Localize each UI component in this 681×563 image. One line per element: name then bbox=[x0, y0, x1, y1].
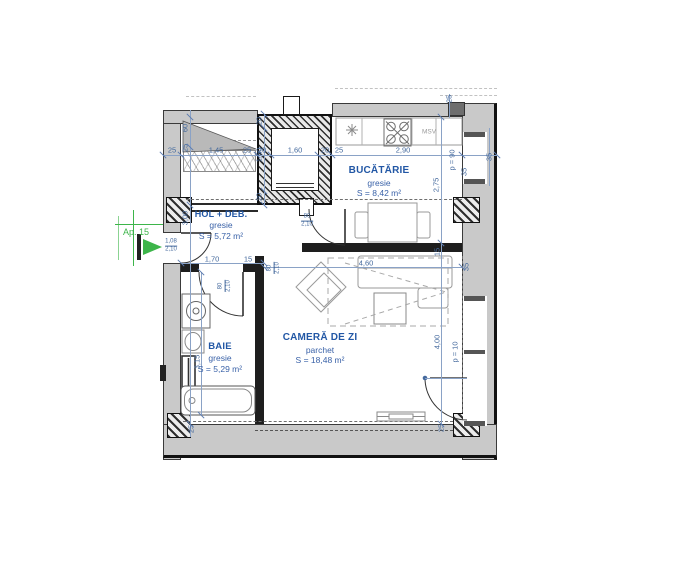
dimension-label: 20 bbox=[255, 117, 263, 125]
dimension-label: 1,45 bbox=[209, 146, 224, 154]
dimension-label: 25 bbox=[243, 146, 251, 154]
stove-icon bbox=[384, 119, 411, 146]
entrance-green-line-v2 bbox=[118, 216, 119, 260]
dimension-label: 4,60 bbox=[359, 259, 374, 267]
washing-machine-icon bbox=[182, 294, 210, 328]
dim-line-balcony-door bbox=[425, 378, 467, 379]
dishwasher-label: MSV bbox=[422, 129, 436, 136]
apartment-label: Ap. 15 bbox=[123, 227, 149, 237]
dim-line-left-chain bbox=[190, 110, 191, 437]
dimension-label: 15 bbox=[244, 255, 252, 263]
dimension-label: 20 bbox=[255, 193, 263, 201]
dimension-label: 25 bbox=[335, 146, 343, 154]
entrance-arrow-icon bbox=[143, 239, 162, 255]
fixtures-layer bbox=[0, 0, 681, 563]
room-finish: gresie bbox=[195, 220, 248, 231]
room-area: S = 5,29 m² bbox=[198, 364, 242, 375]
dimension-label: p = 90 bbox=[448, 149, 456, 170]
room-area: S = 18,48 m² bbox=[283, 355, 358, 366]
room-finish: gresie bbox=[349, 178, 410, 189]
dimension-label: 2,90 bbox=[396, 146, 411, 154]
floor-plan: Ap. 15 BUCĂTĂRIE gresie S = 8,42 m² HOL … bbox=[0, 0, 681, 563]
entrance-door-bar bbox=[137, 234, 141, 260]
dimension-label: 35 bbox=[460, 168, 468, 176]
radiator bbox=[377, 412, 425, 421]
dimension-label: 25 bbox=[168, 146, 176, 154]
entrance-green-line bbox=[115, 224, 163, 225]
room-finish: gresie bbox=[198, 353, 242, 364]
bathtub bbox=[181, 386, 255, 415]
dimension-label: 1,60 bbox=[288, 146, 303, 154]
room-area: S = 5,72 m² bbox=[195, 231, 248, 242]
room-area: S = 8,42 m² bbox=[349, 188, 410, 199]
room-name: HOL + DEB. bbox=[195, 209, 248, 220]
sink-icon bbox=[346, 124, 358, 136]
door-size-label: 802,10 bbox=[218, 280, 233, 292]
dimension-label: 3,15 bbox=[193, 355, 201, 370]
dimension-label: 60 bbox=[181, 124, 189, 132]
door-size-label: 802,10 bbox=[267, 262, 282, 274]
room-name: BAIE bbox=[198, 341, 242, 353]
room-label-hol: HOL + DEB. gresie S = 5,72 m² bbox=[195, 209, 248, 242]
room-finish: parchet bbox=[283, 345, 358, 356]
dimension-label: p = 10 bbox=[451, 341, 459, 362]
room-label-bath: BAIE gresie S = 5,29 m² bbox=[198, 341, 242, 374]
dimension-label: 4,00 bbox=[433, 335, 441, 350]
dimension-label: 1,70 bbox=[205, 255, 220, 263]
entrance-green-line-v bbox=[133, 210, 134, 266]
dimension-label: 15 bbox=[433, 248, 441, 256]
armchair bbox=[296, 262, 346, 312]
room-name: BUCĂTĂRIE bbox=[349, 165, 410, 178]
room-label-living: CAMERĂ DE ZI parchet S = 18,48 m² bbox=[283, 332, 358, 366]
tv-table bbox=[374, 293, 406, 324]
dimension-label: 3,00 bbox=[181, 211, 189, 226]
dimension-label: 20 bbox=[321, 146, 329, 154]
dimension-label: 25 bbox=[445, 95, 453, 103]
room-label-kitchen: BUCĂTĂRIE gresie S = 8,42 m² bbox=[349, 165, 410, 199]
kitchen-table bbox=[355, 203, 430, 242]
kitchen-door-arc bbox=[309, 209, 345, 245]
room-name: CAMERĂ DE ZI bbox=[283, 332, 358, 345]
dimension-label: 2,75 bbox=[432, 178, 440, 193]
balcony-door-arc bbox=[425, 378, 467, 420]
door-size-label: 802,10 bbox=[301, 214, 313, 229]
dimension-label: 35 bbox=[485, 153, 493, 161]
door-size-label: 1,082,10 bbox=[165, 239, 177, 254]
